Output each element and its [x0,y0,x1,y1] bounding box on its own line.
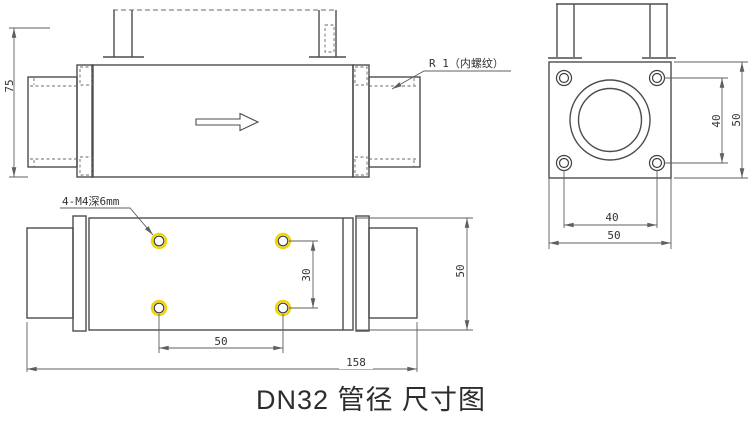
dim-hole-pitch-v-40: 40 [664,78,728,163]
dim-label-75: 75 [3,79,16,92]
end-view: 40 50 40 50 [548,4,748,249]
thread-note-leader: R 1（内螺纹） [392,56,511,89]
thread-note-label: R 1（内螺纹） [429,56,504,70]
tapped-holes-leader: 4-M4深6mm [60,195,153,235]
end-top-bracket [548,4,676,58]
dim-label-40v: 40 [710,114,723,127]
drawing-page: 75 R 1（内螺纹） 40 [0,0,750,428]
technical-drawing: 75 R 1（内螺纹） 40 [0,0,750,428]
dim-label-50-width: 50 [454,264,467,277]
tapped-holes-label: 4-M4深6mm [62,195,120,208]
bore-outer-circle [570,80,650,160]
dim-label-50v: 50 [730,113,743,126]
corner-bolt-holes [557,71,665,171]
flow-arrow-icon [196,114,258,131]
plan-view: 4-M4深6mm 30 50 158 50 [27,195,473,372]
right-fitting [353,65,420,177]
plan-right-fitting [356,216,417,331]
dim-label-50h: 50 [607,229,620,242]
dim-height-75: 75 [3,28,50,177]
dim-label-158: 158 [346,356,366,369]
dim-plan-width-50: 50 [356,218,473,330]
plan-left-fitting [27,216,86,331]
dim-hole-pitch-30: 30 [289,241,318,308]
top-bracket-phantom [103,10,346,57]
bore-inner-circle [579,89,642,152]
dim-label-50-pitch: 50 [214,335,227,348]
dim-label-30: 30 [300,268,313,281]
left-fitting [28,65,93,177]
tapped-holes [152,234,290,315]
dim-hole-pitch-50: 50 [159,314,283,353]
drawing-caption: DN32 管径 尺寸图 [256,385,486,415]
side-view: 75 R 1（内螺纹） [3,10,511,177]
dim-label-40h: 40 [605,211,618,224]
